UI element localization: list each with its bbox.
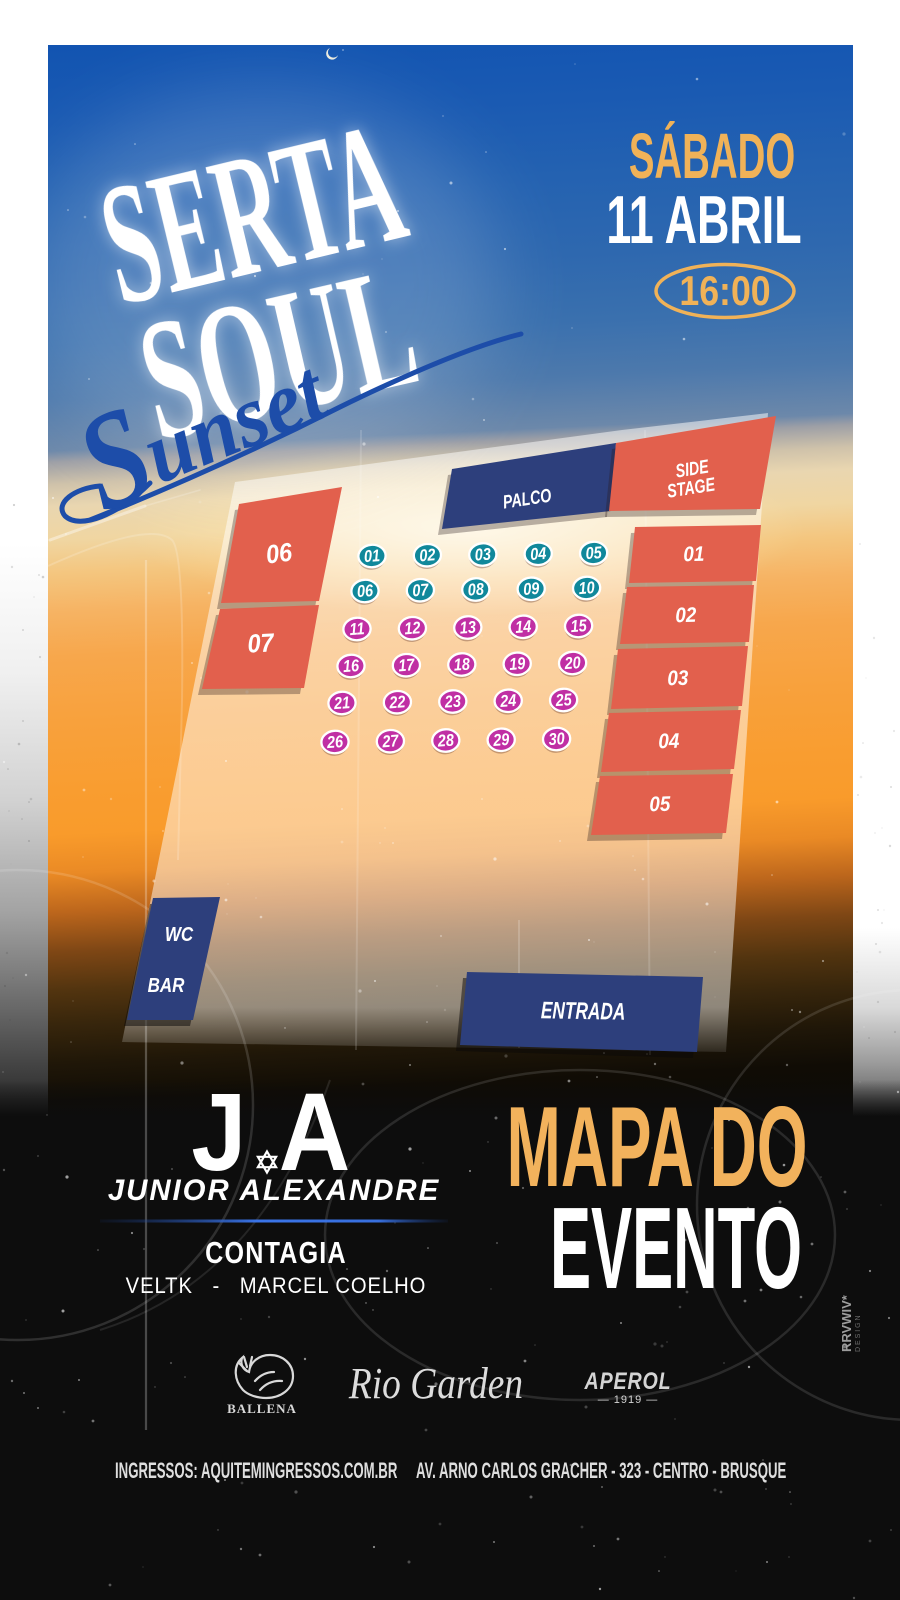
svg-text:18: 18 (453, 656, 471, 675)
svg-text:03: 03 (667, 667, 689, 691)
svg-text:CONTAGIA: CONTAGIA (205, 1234, 347, 1269)
svg-text:17: 17 (398, 656, 416, 675)
svg-text:20: 20 (563, 654, 581, 673)
svg-text:23: 23 (443, 693, 461, 712)
svg-text:BAR: BAR (148, 974, 185, 997)
svg-text:08: 08 (467, 581, 485, 600)
svg-text:21: 21 (332, 694, 350, 713)
svg-text:01: 01 (363, 547, 380, 566)
svg-text:25: 25 (554, 691, 572, 710)
svg-text:05: 05 (585, 544, 603, 563)
svg-text:15: 15 (570, 617, 588, 636)
svg-text:06: 06 (356, 582, 374, 601)
svg-text:22: 22 (388, 693, 406, 712)
svg-text:11: 11 (349, 620, 365, 639)
svg-text:SÁBADO: SÁBADO (629, 120, 795, 193)
svg-text:INGRESSOS: AQUITEMINGRESSOS.CO: INGRESSOS: AQUITEMINGRESSOS.COM.BR (115, 1459, 397, 1483)
svg-text:AV. ARNO CARLOS GRACHER - 323: AV. ARNO CARLOS GRACHER - 323 - CENTRO -… (416, 1459, 786, 1483)
svg-text:26: 26 (325, 733, 343, 752)
svg-text:RRVWIV*: RRVWIV* (839, 1294, 854, 1352)
svg-text:09: 09 (523, 580, 541, 599)
svg-text:10: 10 (578, 579, 596, 598)
svg-text:30: 30 (548, 730, 566, 749)
svg-text:16:00: 16:00 (679, 268, 770, 314)
svg-text:24: 24 (499, 692, 517, 711)
svg-text:27: 27 (381, 732, 400, 752)
svg-text:Rio Garden: Rio Garden (348, 1359, 523, 1407)
svg-text:BALLENA: BALLENA (227, 1401, 297, 1416)
svg-text:16: 16 (342, 657, 360, 676)
svg-text:29: 29 (492, 731, 510, 750)
svg-text:12: 12 (404, 619, 422, 638)
svg-text:04: 04 (530, 545, 548, 564)
svg-text:03: 03 (474, 546, 492, 565)
svg-text:04: 04 (658, 730, 680, 754)
svg-text:JUNIOR ALEXANDRE: JUNIOR ALEXANDRE (108, 1174, 440, 1207)
svg-text:07: 07 (412, 581, 430, 600)
svg-text:APEROL: APEROL (584, 1367, 672, 1394)
svg-text:01: 01 (683, 543, 705, 567)
svg-text:13: 13 (459, 619, 477, 638)
svg-text:07: 07 (247, 629, 276, 659)
svg-text:28: 28 (436, 732, 454, 751)
svg-text:02: 02 (675, 604, 697, 628)
svg-text:EVENTO: EVENTO (550, 1183, 802, 1313)
svg-text:VELTK - MARCEL COELHO: VELTK - MARCEL COELHO (126, 1274, 427, 1298)
svg-text:19: 19 (509, 655, 527, 674)
svg-text:06: 06 (264, 538, 294, 569)
svg-text:ENTRADA: ENTRADA (541, 998, 626, 1026)
svg-text:02: 02 (419, 546, 437, 565)
svg-text:— 1919 —: — 1919 — (598, 1394, 659, 1406)
svg-text:14: 14 (515, 618, 533, 637)
svg-text:11 ABRIL: 11 ABRIL (606, 183, 801, 259)
svg-text:WC: WC (165, 923, 194, 946)
svg-text:05: 05 (649, 793, 671, 817)
svg-text:D E S I G N: D E S I G N (855, 1315, 862, 1352)
